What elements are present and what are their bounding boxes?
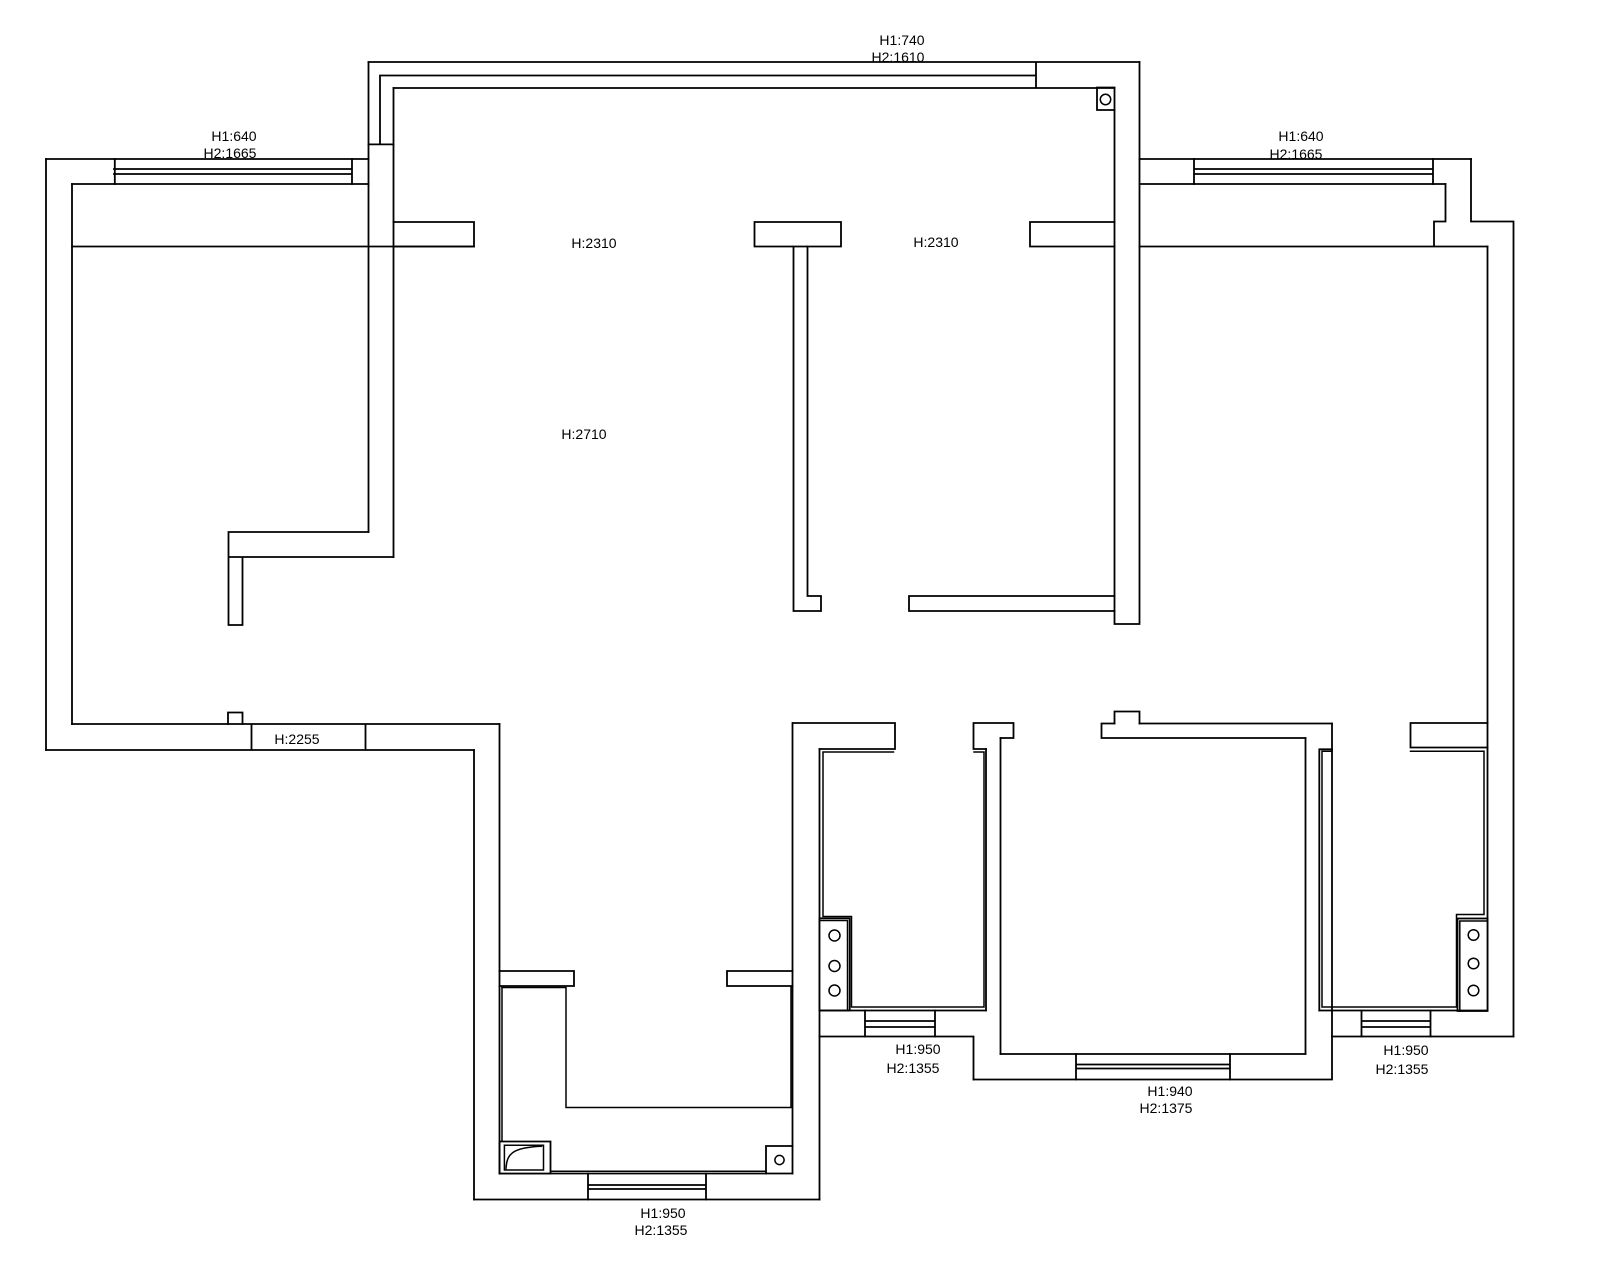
svg-text:H:2255: H:2255 xyxy=(274,731,319,747)
svg-text:H2:1355: H2:1355 xyxy=(1376,1061,1429,1077)
svg-text:H1:950: H1:950 xyxy=(1383,1042,1428,1058)
svg-text:H:2310: H:2310 xyxy=(913,234,958,250)
svg-text:H1:950: H1:950 xyxy=(640,1205,685,1221)
svg-text:H1:940: H1:940 xyxy=(1147,1083,1192,1099)
svg-text:H:2310: H:2310 xyxy=(571,235,616,251)
svg-text:H2:1665: H2:1665 xyxy=(204,145,257,161)
svg-text:H1:740: H1:740 xyxy=(879,32,924,48)
svg-text:H2:1375: H2:1375 xyxy=(1140,1100,1193,1116)
svg-text:H2:1355: H2:1355 xyxy=(635,1222,688,1238)
svg-text:H2:1665: H2:1665 xyxy=(1270,146,1323,162)
svg-text:H2:1610: H2:1610 xyxy=(872,49,925,65)
svg-text:H1:640: H1:640 xyxy=(1278,128,1323,144)
svg-text:H2:1355: H2:1355 xyxy=(887,1060,940,1076)
svg-text:H1:950: H1:950 xyxy=(895,1041,940,1057)
svg-text:H:2710: H:2710 xyxy=(561,426,606,442)
svg-text:H1:640: H1:640 xyxy=(211,128,256,144)
